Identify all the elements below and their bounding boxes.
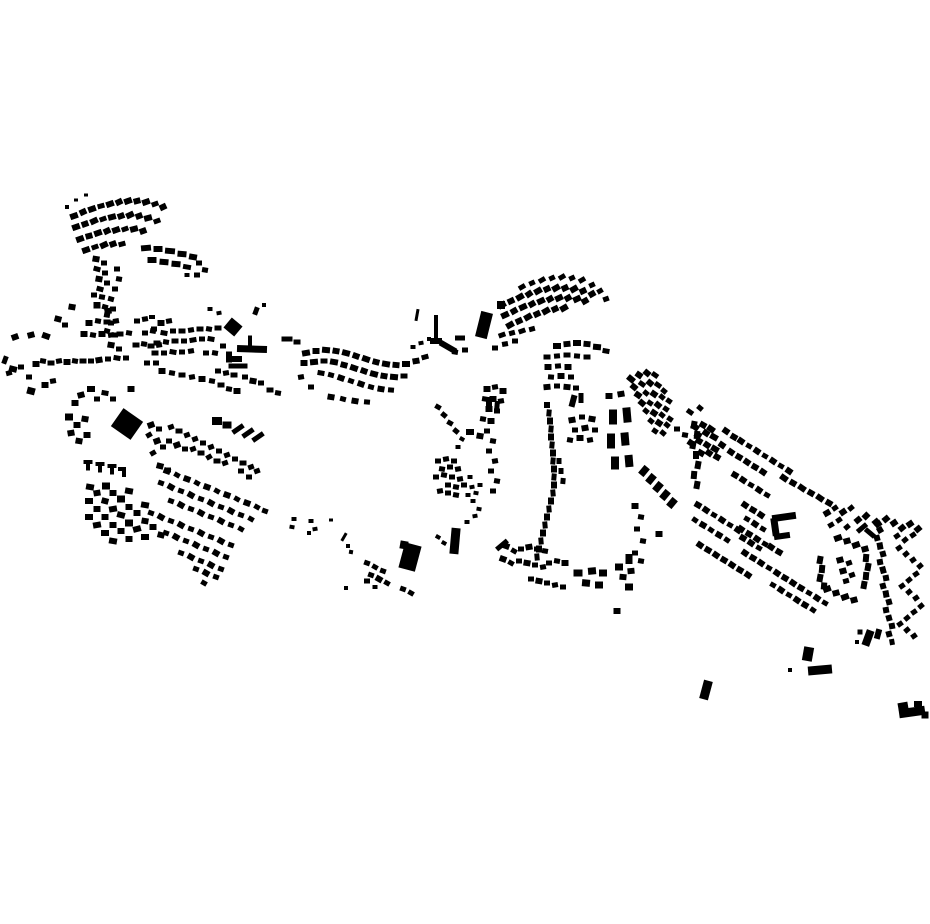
building-footprint xyxy=(800,601,809,610)
building-footprint xyxy=(802,646,814,662)
building-footprint xyxy=(449,475,455,480)
building-footprint xyxy=(105,357,111,362)
building-footprint xyxy=(377,385,385,392)
building-footprint xyxy=(74,422,81,428)
building-footprint xyxy=(374,575,383,584)
building-footprint xyxy=(879,550,886,557)
building-footprint xyxy=(111,408,143,440)
building-footprint xyxy=(363,560,370,567)
building-footprint xyxy=(659,489,671,501)
building-footprint xyxy=(196,529,205,538)
building-footprint xyxy=(476,432,484,439)
building-footprint xyxy=(217,566,224,573)
building-footprint xyxy=(75,437,83,444)
building-footprint xyxy=(200,579,208,586)
building-footprint xyxy=(312,527,318,532)
building-footprint xyxy=(203,351,209,356)
building-footprint xyxy=(579,393,584,403)
building-footprint xyxy=(156,513,165,522)
building-footprint xyxy=(373,585,378,589)
building-footprint xyxy=(117,496,125,503)
building-footprint xyxy=(215,326,222,331)
building-footprint xyxy=(905,576,913,584)
building-footprint xyxy=(534,553,540,560)
building-footprint xyxy=(476,507,482,512)
building-footprint xyxy=(5,370,12,376)
building-footprint xyxy=(11,333,20,341)
building-footprint xyxy=(694,461,701,470)
building-footprint xyxy=(551,305,560,313)
building-footprint xyxy=(851,541,861,549)
building-footprint xyxy=(163,339,170,345)
building-footprint xyxy=(62,323,68,328)
building-footprint xyxy=(102,483,110,490)
building-footprint xyxy=(95,275,103,282)
building-footprint xyxy=(104,307,112,314)
building-footprint xyxy=(218,383,225,388)
building-footprint xyxy=(347,378,354,385)
building-footprint xyxy=(147,421,156,429)
building-footprint xyxy=(573,386,579,391)
building-footprint xyxy=(893,532,901,540)
building-footprint xyxy=(101,390,109,396)
building-footprint xyxy=(634,527,640,532)
building-footprint xyxy=(441,472,448,478)
building-footprint xyxy=(862,629,875,647)
building-footprint xyxy=(889,519,898,528)
building-footprint xyxy=(81,415,89,422)
building-footprint xyxy=(275,390,282,396)
building-footprint xyxy=(104,320,111,325)
building-footprint xyxy=(550,457,556,464)
building-footprint xyxy=(360,367,369,375)
building-footprint xyxy=(42,382,49,388)
building-footprint xyxy=(133,343,140,348)
building-footprint xyxy=(113,318,120,324)
building-footprint xyxy=(563,294,572,303)
building-footprint xyxy=(750,463,759,472)
building-footprint xyxy=(797,483,807,493)
building-footprint xyxy=(558,273,567,281)
building-footprint xyxy=(768,457,777,466)
building-footprint xyxy=(582,579,591,587)
building-footprint xyxy=(542,521,548,528)
building-footprint xyxy=(502,341,509,347)
building-footprint xyxy=(114,267,120,272)
building-footprint xyxy=(227,522,234,529)
building-footprint xyxy=(619,574,626,581)
building-footprint xyxy=(427,337,431,341)
building-footprint xyxy=(564,353,571,358)
building-footprint xyxy=(507,559,515,566)
building-footprint xyxy=(550,489,556,496)
building-footprint xyxy=(179,373,186,378)
building-footprint xyxy=(301,360,308,366)
building-footprint xyxy=(743,571,752,580)
building-footprint xyxy=(237,525,245,532)
building-footprint xyxy=(223,370,230,376)
building-footprint xyxy=(99,215,107,222)
building-footprint xyxy=(740,549,749,558)
building-footprint xyxy=(750,520,759,529)
building-footprint xyxy=(541,306,551,315)
building-footprint xyxy=(251,431,265,443)
building-footprint xyxy=(148,257,157,263)
building-footprint xyxy=(262,303,266,307)
building-footprint xyxy=(166,318,173,324)
building-footprint xyxy=(548,274,556,281)
building-footprint xyxy=(821,599,829,606)
building-footprint xyxy=(115,198,124,206)
building-footprint xyxy=(617,390,625,397)
building-footprint xyxy=(238,469,244,474)
building-footprint xyxy=(505,320,515,329)
building-footprint xyxy=(523,312,533,321)
building-footprint xyxy=(763,491,771,498)
building-footprint xyxy=(640,538,647,544)
building-footprint xyxy=(141,245,151,252)
building-footprint xyxy=(41,332,51,340)
building-footprint xyxy=(171,533,180,542)
building-footprint xyxy=(565,364,572,370)
building-footprint xyxy=(144,361,150,366)
building-footprint xyxy=(554,384,560,389)
building-footprint xyxy=(209,378,216,384)
building-footprint xyxy=(340,532,347,541)
building-footprint xyxy=(117,332,124,337)
building-footprint xyxy=(71,223,81,231)
building-footprint xyxy=(203,483,212,491)
building-footprint xyxy=(145,431,153,438)
building-footprint xyxy=(185,273,190,277)
building-footprint xyxy=(551,482,557,489)
building-footprint xyxy=(492,458,499,464)
building-footprint xyxy=(310,359,318,366)
building-footprint xyxy=(102,271,108,276)
building-footprint xyxy=(197,496,204,503)
building-footprint xyxy=(142,331,148,336)
building-footprint xyxy=(579,415,585,420)
building-footprint xyxy=(560,478,566,484)
building-footprint xyxy=(860,581,867,590)
building-footprint xyxy=(534,547,540,552)
building-footprint xyxy=(710,511,718,518)
building-footprint xyxy=(435,459,441,464)
building-footprint xyxy=(885,630,892,637)
building-footprint xyxy=(488,418,495,424)
building-footprint xyxy=(674,427,680,432)
building-footprint xyxy=(540,530,546,537)
building-footprint xyxy=(65,205,69,209)
building-footprint xyxy=(125,211,135,220)
building-footprint xyxy=(877,559,884,566)
building-footprint xyxy=(898,582,906,590)
building-footprint xyxy=(528,279,536,286)
building-footprint xyxy=(399,586,406,593)
building-footprint xyxy=(461,483,467,488)
building-footprint xyxy=(729,433,738,442)
building-footprint xyxy=(94,304,101,309)
building-footprint xyxy=(473,491,479,496)
building-footprint xyxy=(812,594,821,603)
building-footprint xyxy=(858,630,863,635)
building-footprint xyxy=(208,307,213,311)
building-footprint xyxy=(447,465,453,470)
building-footprint xyxy=(627,568,634,575)
building-footprint xyxy=(383,579,391,586)
building-footprint xyxy=(165,248,175,255)
building-footprint xyxy=(835,516,843,524)
building-footprint xyxy=(471,499,476,503)
building-footprint xyxy=(528,326,535,332)
building-footprint xyxy=(665,397,673,405)
building-footprint xyxy=(533,310,542,318)
building-footprint xyxy=(702,441,711,450)
building-footprint xyxy=(662,405,670,413)
building-footprint xyxy=(141,198,151,206)
building-footprint xyxy=(864,563,871,572)
building-footprint xyxy=(191,436,198,443)
building-footprint xyxy=(157,480,164,487)
building-footprint-map xyxy=(0,0,930,924)
building-footprint xyxy=(626,554,633,564)
building-footprint xyxy=(779,473,789,483)
building-footprint xyxy=(211,549,220,558)
building-footprint xyxy=(248,336,252,349)
building-footprint xyxy=(214,459,221,464)
building-footprint xyxy=(909,556,917,564)
building-footprint xyxy=(486,449,492,454)
building-footprint xyxy=(202,546,209,553)
building-footprint xyxy=(166,439,172,444)
building-footprint xyxy=(638,558,645,564)
building-footprint xyxy=(118,241,126,248)
building-footprint xyxy=(756,511,765,520)
building-footprint xyxy=(490,438,497,444)
building-footprint xyxy=(816,574,823,583)
building-footprint xyxy=(167,518,174,525)
building-footprint xyxy=(726,521,734,528)
building-footprint xyxy=(40,358,47,364)
building-footprint xyxy=(112,287,118,292)
building-footprint xyxy=(72,358,79,364)
building-footprint xyxy=(827,521,835,528)
building-footprint xyxy=(160,330,168,336)
building-footprint xyxy=(96,462,105,466)
building-footprint xyxy=(916,562,924,570)
building-footprint xyxy=(543,285,552,293)
building-footprint xyxy=(788,579,797,588)
building-footprint xyxy=(86,320,93,326)
building-footprint xyxy=(126,536,133,542)
building-footprint xyxy=(544,402,550,408)
building-footprint xyxy=(466,493,471,497)
building-footprint xyxy=(550,450,556,457)
building-footprint xyxy=(126,330,133,336)
building-footprint xyxy=(87,386,95,392)
building-footprint xyxy=(897,523,906,532)
building-footprint xyxy=(364,399,370,405)
building-footprint xyxy=(691,516,699,524)
building-footprint xyxy=(434,403,442,410)
building-footprint xyxy=(116,347,122,352)
building-footprint xyxy=(121,225,129,232)
building-footprint xyxy=(652,481,664,493)
building-footprint xyxy=(223,318,242,337)
building-footprint xyxy=(344,586,348,590)
building-footprint xyxy=(149,449,157,456)
building-footprint xyxy=(494,478,501,484)
building-footprint xyxy=(309,519,314,523)
building-footprint xyxy=(607,434,615,449)
building-footprint xyxy=(863,572,870,580)
building-footprint xyxy=(500,388,507,394)
building-footprint xyxy=(638,465,650,477)
building-footprint xyxy=(748,506,757,515)
building-footprint xyxy=(602,348,610,354)
building-footprint xyxy=(889,639,895,646)
building-footprint xyxy=(173,441,182,449)
building-footprint xyxy=(192,566,199,573)
building-footprint xyxy=(147,510,154,517)
building-footprint xyxy=(187,506,194,513)
building-footprint xyxy=(75,235,85,243)
building-footprint xyxy=(831,504,839,512)
building-footprint xyxy=(453,492,460,498)
building-footprint xyxy=(152,351,159,356)
building-footprint xyxy=(774,548,783,557)
building-footprint xyxy=(149,315,155,319)
building-footprint xyxy=(719,556,728,565)
building-footprint xyxy=(632,551,638,556)
building-footprint xyxy=(189,446,196,453)
building-footprint xyxy=(197,558,204,565)
building-footprint xyxy=(588,281,596,288)
building-footprint xyxy=(885,598,892,605)
building-footprint xyxy=(686,408,695,416)
building-footprint xyxy=(756,559,765,568)
building-footprint xyxy=(317,370,325,376)
building-footprint xyxy=(84,194,88,197)
building-footprint xyxy=(516,559,522,564)
building-footprint xyxy=(222,554,229,561)
building-footprint xyxy=(772,569,781,578)
building-footprint xyxy=(449,528,460,555)
building-footprint xyxy=(903,626,911,634)
building-footprint xyxy=(740,501,749,510)
building-footprint xyxy=(188,348,195,354)
building-footprint xyxy=(340,361,348,369)
building-footprint xyxy=(551,466,557,473)
building-footprint xyxy=(472,514,478,519)
building-footprint xyxy=(714,531,723,540)
building-footprint xyxy=(532,563,538,568)
building-footprint xyxy=(698,521,707,530)
building-footprint xyxy=(399,540,408,549)
building-footprint xyxy=(253,503,261,510)
building-footprint xyxy=(606,393,613,399)
building-footprint xyxy=(626,374,636,384)
building-footprint xyxy=(401,374,408,379)
building-footprint xyxy=(528,577,534,582)
building-footprint xyxy=(863,554,870,562)
building-footprint xyxy=(402,361,410,367)
building-footprint xyxy=(243,499,252,507)
building-footprint xyxy=(196,509,205,518)
building-footprint xyxy=(220,344,226,349)
building-footprint xyxy=(573,340,581,346)
building-footprint xyxy=(216,311,222,316)
building-footprint xyxy=(568,274,576,281)
building-footprint xyxy=(910,632,918,640)
building-footprint xyxy=(446,419,454,426)
building-footprint xyxy=(134,510,141,516)
building-footprint xyxy=(666,415,674,423)
building-footprint xyxy=(361,355,371,363)
building-footprint xyxy=(167,498,174,505)
building-footprint xyxy=(202,267,209,273)
building-footprint xyxy=(909,531,917,539)
building-footprint xyxy=(249,377,257,384)
building-footprint xyxy=(193,479,201,486)
building-footprint xyxy=(169,370,176,376)
building-footprint xyxy=(390,374,398,381)
building-footprint xyxy=(540,564,547,570)
building-footprint xyxy=(836,556,844,564)
building-footprint xyxy=(580,297,589,306)
building-footprint xyxy=(784,467,793,476)
building-footprint xyxy=(663,421,671,429)
building-footprint xyxy=(247,515,255,522)
building-footprint xyxy=(414,309,419,321)
building-footprint xyxy=(110,522,117,528)
building-footprint xyxy=(622,407,631,423)
building-footprint xyxy=(469,485,475,490)
building-footprint xyxy=(216,449,222,454)
building-footprint xyxy=(372,358,380,366)
building-footprint xyxy=(64,359,71,365)
building-footprint xyxy=(187,526,194,533)
building-footprint xyxy=(492,384,499,390)
building-footprint xyxy=(129,225,138,233)
building-footprint xyxy=(559,468,564,474)
building-footprint xyxy=(895,544,903,552)
building-footprint xyxy=(125,520,133,527)
building-footprint xyxy=(110,490,117,496)
building-footprint xyxy=(629,382,638,391)
building-footprint xyxy=(905,520,914,529)
building-footprint xyxy=(85,498,93,504)
building-footprint xyxy=(101,497,109,505)
building-footprint xyxy=(538,537,544,544)
building-footprint xyxy=(176,501,185,510)
building-footprint xyxy=(240,461,247,466)
building-footprint xyxy=(382,360,391,367)
building-footprint xyxy=(111,226,121,234)
building-footprint xyxy=(533,286,543,295)
building-footprint xyxy=(548,425,554,432)
building-footprint xyxy=(572,295,582,304)
building-footprint xyxy=(558,373,565,379)
building-footprint xyxy=(693,481,700,490)
building-footprint xyxy=(853,515,862,524)
building-footprint xyxy=(108,332,115,338)
building-footprint xyxy=(181,339,187,344)
building-footprint xyxy=(523,559,531,566)
building-footprint xyxy=(117,212,126,220)
building-footprint xyxy=(201,569,210,578)
building-footprint xyxy=(213,487,221,494)
